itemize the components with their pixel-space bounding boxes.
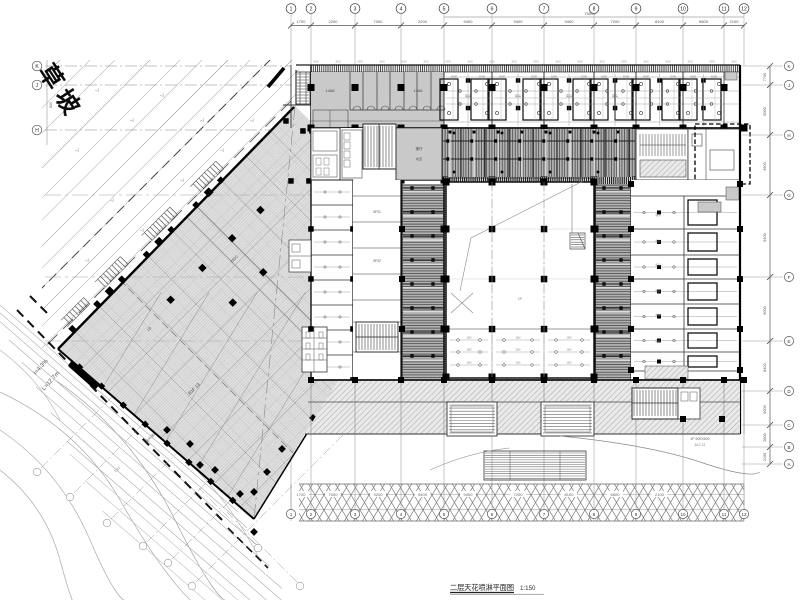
svg-text:2: 2 xyxy=(310,7,313,13)
svg-text:7700: 7700 xyxy=(763,73,767,81)
svg-text:2100: 2100 xyxy=(730,19,740,24)
svg-text:9400: 9400 xyxy=(763,233,767,241)
svg-text:7: 7 xyxy=(543,7,546,13)
svg-text:F: F xyxy=(788,275,791,280)
svg-text:客房: 客房 xyxy=(655,239,661,243)
svg-text:1500: 1500 xyxy=(531,75,538,79)
svg-text:G: G xyxy=(787,193,791,198)
svg-text:5000: 5000 xyxy=(763,107,767,115)
svg-text:6: 6 xyxy=(491,7,494,13)
svg-text:3600: 3600 xyxy=(511,61,517,64)
svg-text:客房: 客房 xyxy=(465,93,471,98)
svg-text:客房: 客房 xyxy=(655,313,661,317)
svg-text:1700: 1700 xyxy=(297,19,307,24)
svg-text:11: 11 xyxy=(722,512,727,517)
svg-text:7200: 7200 xyxy=(514,492,524,497)
svg-text:3600: 3600 xyxy=(335,61,341,64)
svg-text:1500: 1500 xyxy=(711,75,718,79)
svg-text:B: B xyxy=(787,445,790,450)
svg-text:1: 1 xyxy=(290,7,293,13)
svg-text:6800: 6800 xyxy=(699,19,709,24)
svg-text:1468: 1468 xyxy=(414,88,424,93)
svg-text:A: A xyxy=(787,462,790,467)
svg-text:1700: 1700 xyxy=(297,492,307,497)
svg-text:3600: 3600 xyxy=(599,61,605,64)
svg-text:2F: 2F xyxy=(518,296,523,301)
svg-text:2100: 2100 xyxy=(763,453,767,461)
svg-text:3600: 3600 xyxy=(313,61,319,64)
svg-text:1500: 1500 xyxy=(479,75,486,79)
svg-text:前室: 前室 xyxy=(416,156,422,161)
svg-text:3600: 3600 xyxy=(401,61,407,64)
svg-text:3600: 3600 xyxy=(731,61,737,64)
svg-text:二层天花喷淋平面图: 二层天花喷淋平面图 xyxy=(450,583,514,592)
svg-text:3: 3 xyxy=(354,7,357,13)
svg-text:6800: 6800 xyxy=(611,492,621,497)
svg-text:3F02: 3F02 xyxy=(373,259,381,263)
svg-text:ALC 12: ALC 12 xyxy=(695,443,706,447)
svg-text:10: 10 xyxy=(680,512,686,517)
svg-text:K: K xyxy=(787,64,790,69)
svg-text:12: 12 xyxy=(741,512,747,517)
svg-text:11: 11 xyxy=(721,7,726,13)
svg-text:客房: 客房 xyxy=(566,93,572,98)
svg-text:9400: 9400 xyxy=(514,19,524,24)
svg-text:1408: 1408 xyxy=(326,88,336,93)
svg-text:12: 12 xyxy=(741,7,747,13)
svg-text:3600: 3600 xyxy=(643,61,649,64)
svg-text:E: E xyxy=(787,339,790,344)
svg-text:客房: 客房 xyxy=(655,263,661,267)
svg-text:4: 4 xyxy=(400,7,403,13)
svg-text:8400: 8400 xyxy=(763,363,767,371)
svg-text:1500: 1500 xyxy=(623,75,630,79)
svg-text:8100: 8100 xyxy=(655,19,665,24)
svg-text:客房: 客房 xyxy=(515,93,521,98)
svg-text:3600: 3600 xyxy=(533,61,539,64)
svg-text:3600: 3600 xyxy=(379,61,385,64)
svg-text:3600: 3600 xyxy=(665,61,671,64)
svg-text:7000: 7000 xyxy=(329,492,339,497)
svg-text:3600: 3600 xyxy=(489,61,495,64)
svg-text:1500: 1500 xyxy=(581,75,588,79)
svg-text:1800: 1800 xyxy=(566,338,572,340)
svg-text:1500: 1500 xyxy=(670,75,677,79)
svg-text:H: H xyxy=(35,128,39,134)
svg-text:1800: 1800 xyxy=(601,75,608,79)
svg-text:1800: 1800 xyxy=(551,75,558,79)
svg-text:7200: 7200 xyxy=(611,19,621,24)
svg-text:2F 600X600: 2F 600X600 xyxy=(690,437,709,441)
svg-text:9400: 9400 xyxy=(418,492,428,497)
svg-text:9400: 9400 xyxy=(464,492,474,497)
svg-text:1:150: 1:150 xyxy=(520,585,536,592)
svg-text:3600: 3600 xyxy=(687,61,693,64)
svg-text:1800: 1800 xyxy=(466,338,472,340)
svg-text:2200: 2200 xyxy=(418,19,428,24)
svg-text:3F01: 3F01 xyxy=(373,210,381,214)
svg-text:10: 10 xyxy=(680,7,686,13)
svg-text:9000: 9000 xyxy=(763,306,767,314)
svg-text:1800: 1800 xyxy=(566,350,572,352)
svg-text:8: 8 xyxy=(593,7,596,13)
svg-text:7000: 7000 xyxy=(374,19,384,24)
svg-text:梯厅: 梯厅 xyxy=(416,146,424,151)
svg-text:5: 5 xyxy=(443,7,446,13)
svg-text:8100: 8100 xyxy=(565,492,575,497)
svg-text:1800: 1800 xyxy=(515,350,521,352)
svg-text:1800: 1800 xyxy=(566,363,572,365)
svg-text:1800: 1800 xyxy=(690,75,697,79)
svg-text:3600: 3600 xyxy=(467,61,473,64)
svg-text:1800: 1800 xyxy=(451,75,458,79)
svg-text:客房: 客房 xyxy=(655,339,661,343)
svg-text:9400: 9400 xyxy=(464,19,474,24)
svg-text:1800: 1800 xyxy=(466,350,472,352)
svg-text:9200: 9200 xyxy=(374,492,384,497)
svg-text:1800: 1800 xyxy=(643,75,650,79)
svg-text:客房: 客房 xyxy=(655,213,661,217)
svg-text:2200: 2200 xyxy=(329,19,339,24)
svg-text:3600: 3600 xyxy=(445,61,451,64)
svg-text:客房: 客房 xyxy=(612,93,618,98)
svg-text:2100: 2100 xyxy=(655,492,665,497)
svg-text:3600: 3600 xyxy=(555,61,561,64)
svg-text:2800: 2800 xyxy=(763,433,767,441)
svg-text:3600: 3600 xyxy=(577,61,583,64)
svg-text:3600: 3600 xyxy=(423,61,429,64)
svg-text:1800: 1800 xyxy=(515,338,521,340)
svg-text:3600: 3600 xyxy=(621,61,627,64)
svg-text:3900: 3900 xyxy=(763,162,767,170)
svg-text:1800: 1800 xyxy=(515,363,521,365)
svg-text:3600: 3600 xyxy=(357,61,363,64)
svg-text:客房: 客房 xyxy=(655,289,661,293)
svg-text:H: H xyxy=(787,133,790,138)
svg-text:J: J xyxy=(788,83,790,88)
svg-text:5000: 5000 xyxy=(763,405,767,413)
svg-text:1800: 1800 xyxy=(466,363,472,365)
svg-text:3600: 3600 xyxy=(709,61,715,64)
svg-text:9: 9 xyxy=(635,7,638,13)
svg-text:9400: 9400 xyxy=(565,19,575,24)
svg-text:1800: 1800 xyxy=(499,75,506,79)
